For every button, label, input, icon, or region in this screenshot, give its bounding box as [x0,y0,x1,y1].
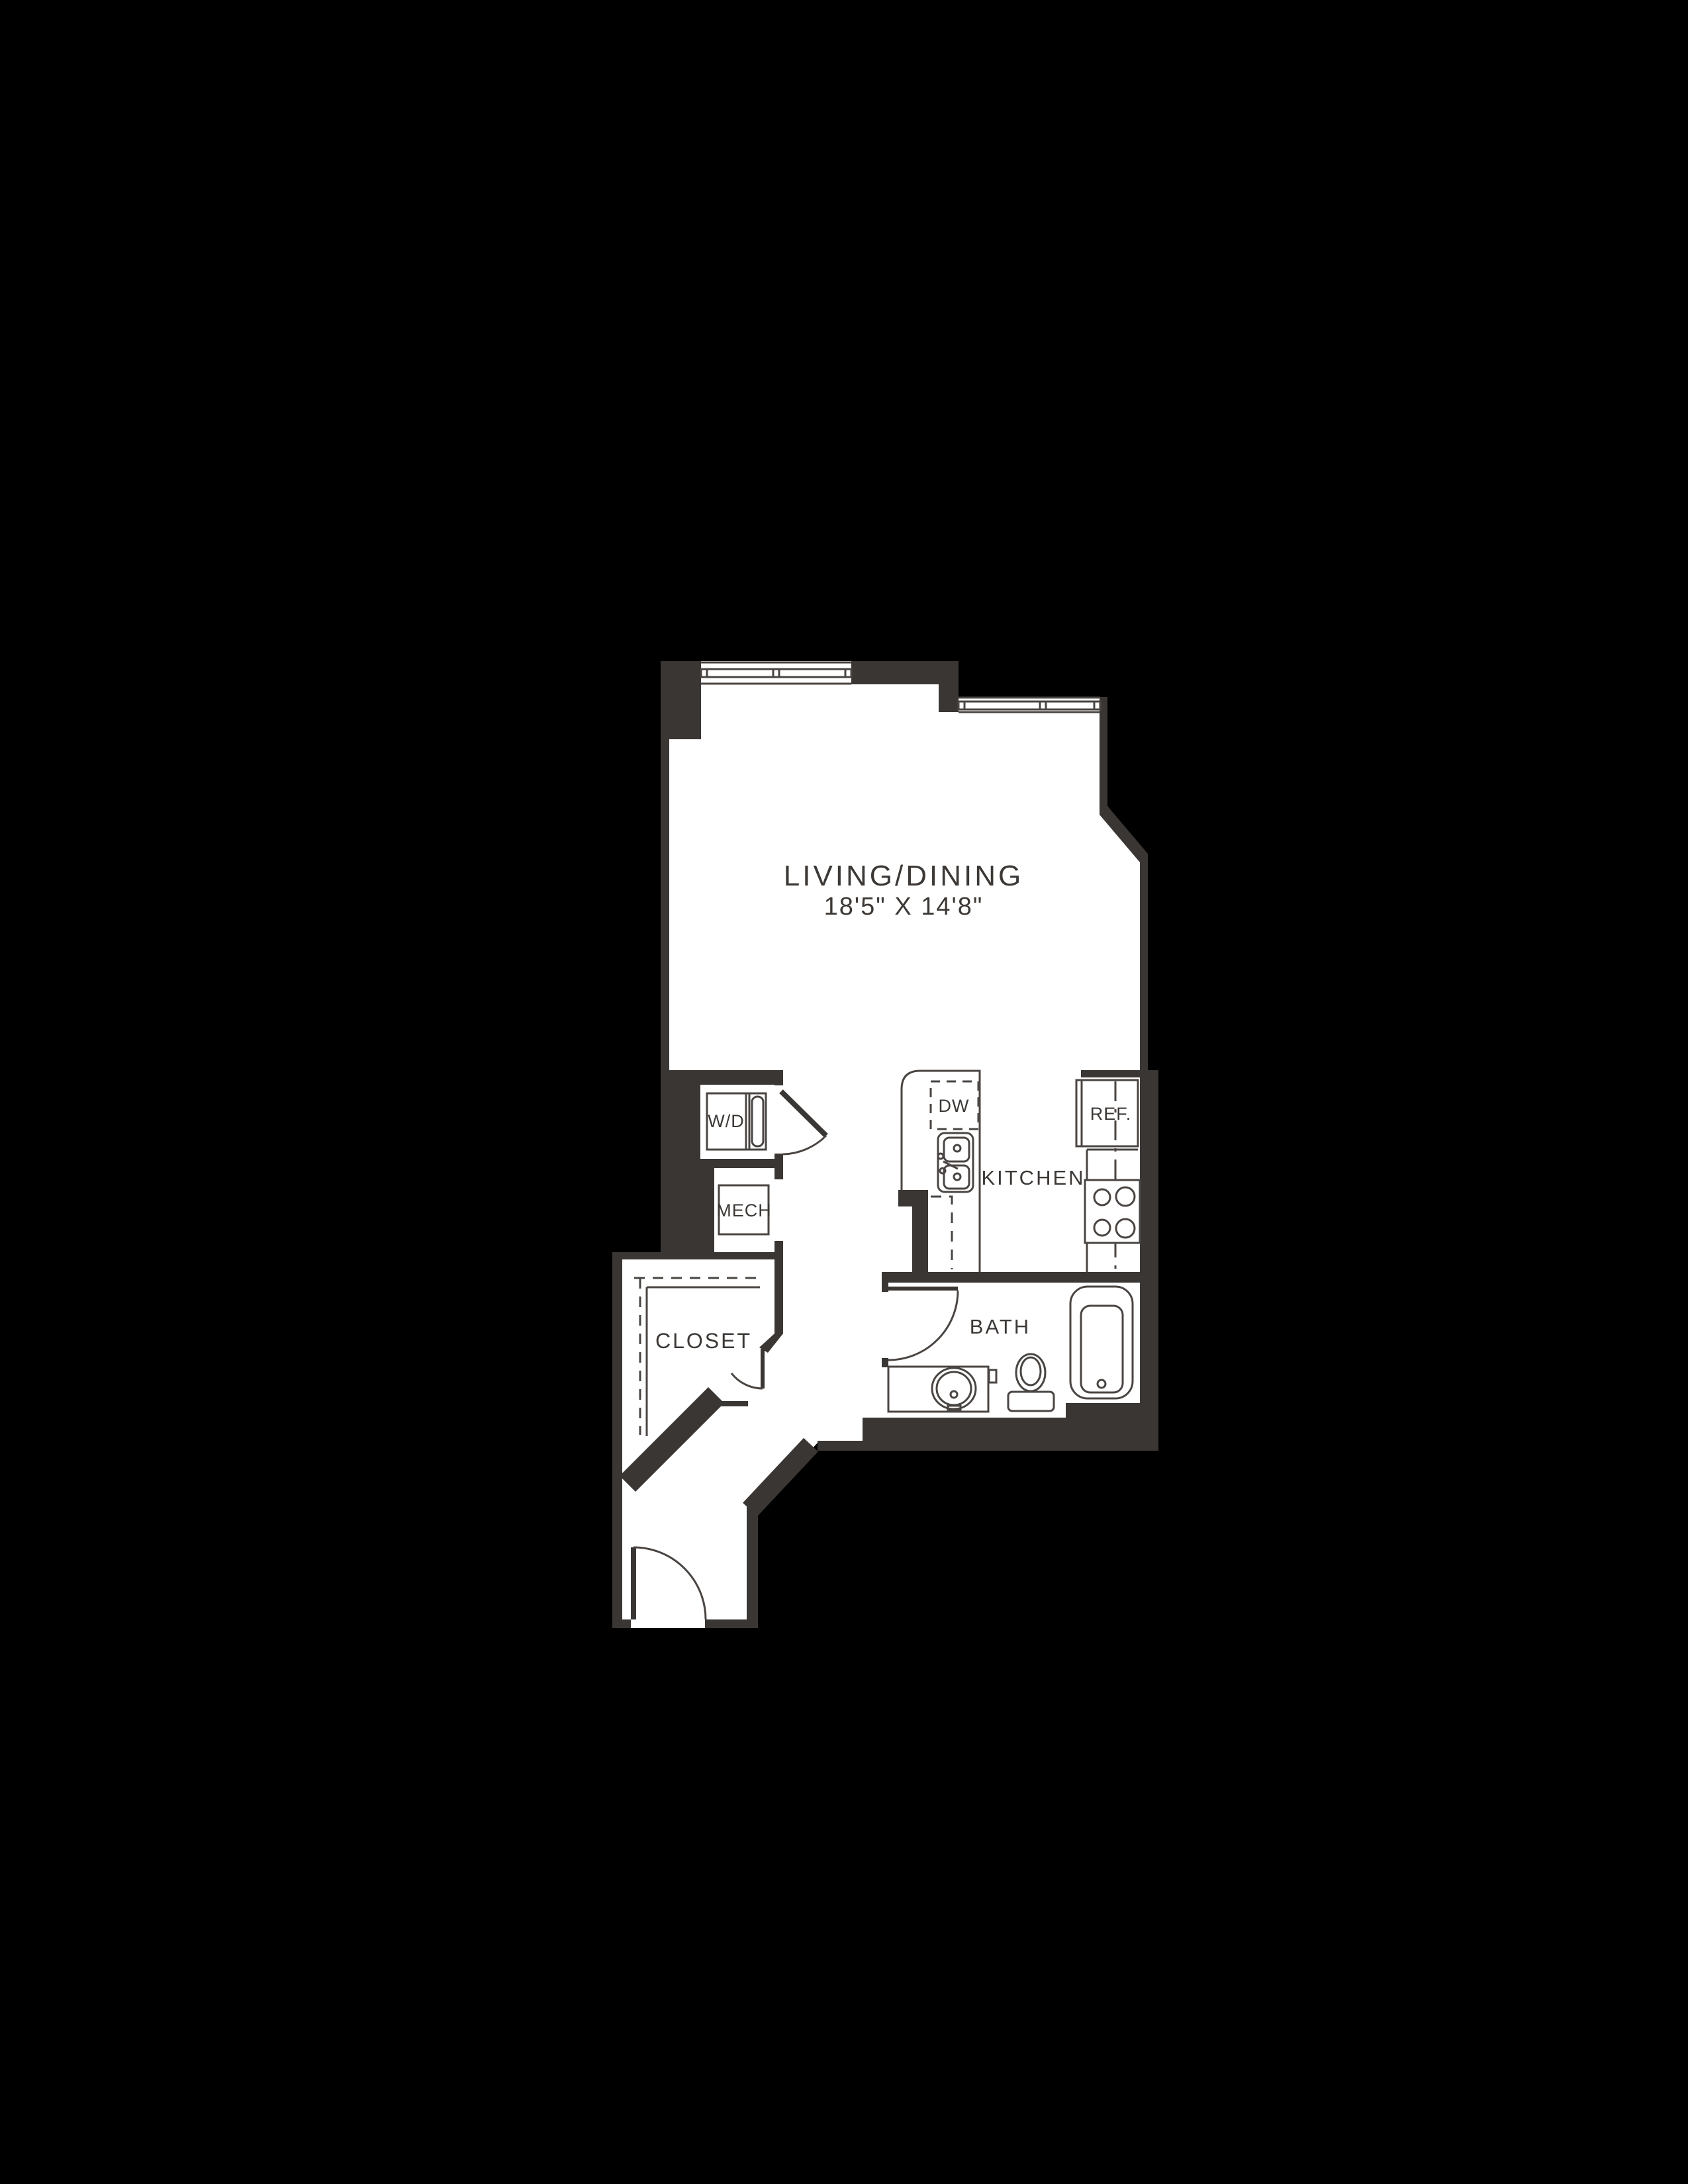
living-dining-label: LIVING/DINING [784,860,1024,892]
wall-entry-right-seg [705,1619,757,1628]
bath-label: BATH [970,1315,1031,1338]
window-1-cap-right [845,669,851,677]
window-2-cap-left [959,702,964,709]
window-2-glazing [959,702,1100,709]
wall-below-tub [1066,1403,1140,1418]
vanity [888,1367,996,1412]
mech-door-gap [774,1179,783,1241]
wall-northeast [1100,697,1107,806]
wall-between-windows [851,661,959,684]
toilet-tank [1008,1392,1054,1411]
living-dining-dimensions: 18'5" X 14'8" [824,893,984,921]
wall-bath-top [882,1272,1140,1283]
window-1-cap-left [701,669,707,677]
window-2-mullion [1040,702,1046,709]
ref-label: REF. [1090,1104,1132,1124]
wall-bath-bottom [863,1418,1158,1451]
wall-ref-nook-top [1081,1070,1140,1077]
bathtub [1070,1287,1133,1398]
wall-top-left-block [661,661,701,739]
wall-bath-pivot-stub-upper [882,1283,888,1292]
wall-right-lower [1140,1070,1158,1451]
wall-hall-corner-top [818,1441,870,1451]
wall-left-lower [612,1259,622,1628]
stove [1085,1180,1140,1243]
wall-closet-right [774,1259,783,1334]
wall-right-upper [1140,858,1148,1070]
wall-entry-left-seg [612,1619,631,1628]
wall-left-upper [661,739,669,1070]
window-1-mullion [773,669,779,677]
floor-plan-page: LIVING/DINING 18'5" X 14'8" KITCHEN BATH… [0,0,1688,2184]
floor-plan-drawing: LIVING/DINING 18'5" X 14'8" KITCHEN BATH… [0,0,1688,2184]
wall-step-block [939,684,959,712]
mech-label: MECH [716,1201,772,1220]
wall-closet-top [612,1252,783,1259]
kitchen-label: KITCHEN [981,1166,1085,1189]
wd-label: W/D [708,1111,744,1131]
dw-label: DW [939,1096,970,1116]
closet-label: CLOSET [655,1329,752,1353]
window-2-cap-right [1094,702,1100,709]
wall-hall-right [747,1504,758,1628]
